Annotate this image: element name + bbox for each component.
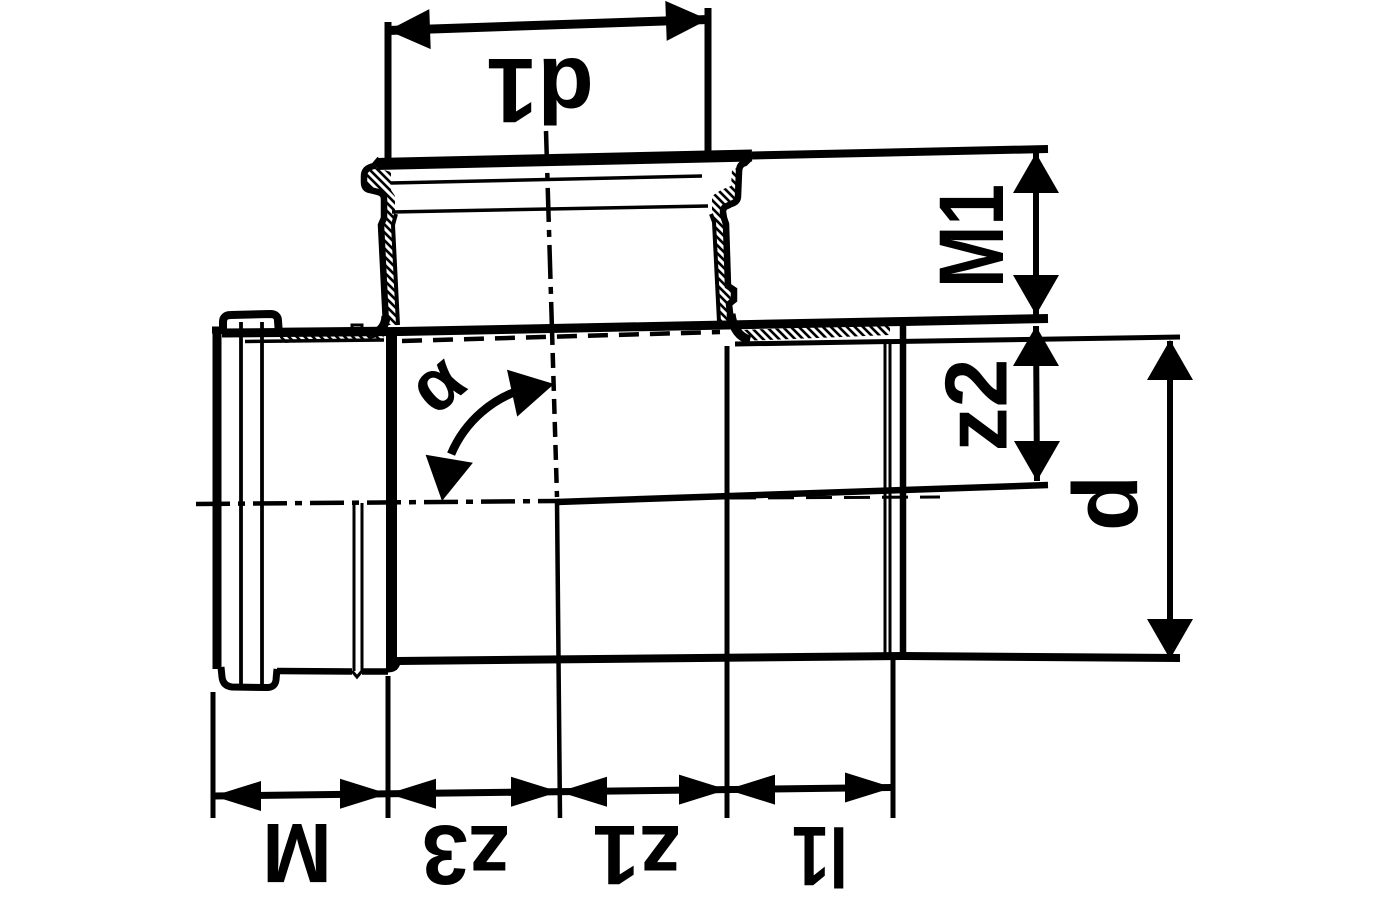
svg-text:d1: d1 (486, 39, 593, 141)
svg-text:z1: z1 (593, 808, 682, 900)
svg-text:l1: l1 (792, 809, 848, 900)
svg-text:d: d (1055, 475, 1157, 531)
svg-text:α: α (392, 337, 480, 430)
svg-text:z3: z3 (422, 808, 511, 900)
svg-text:M1: M1 (921, 184, 1023, 288)
svg-text:M: M (262, 806, 332, 900)
svg-text:z2: z2 (927, 359, 1026, 452)
